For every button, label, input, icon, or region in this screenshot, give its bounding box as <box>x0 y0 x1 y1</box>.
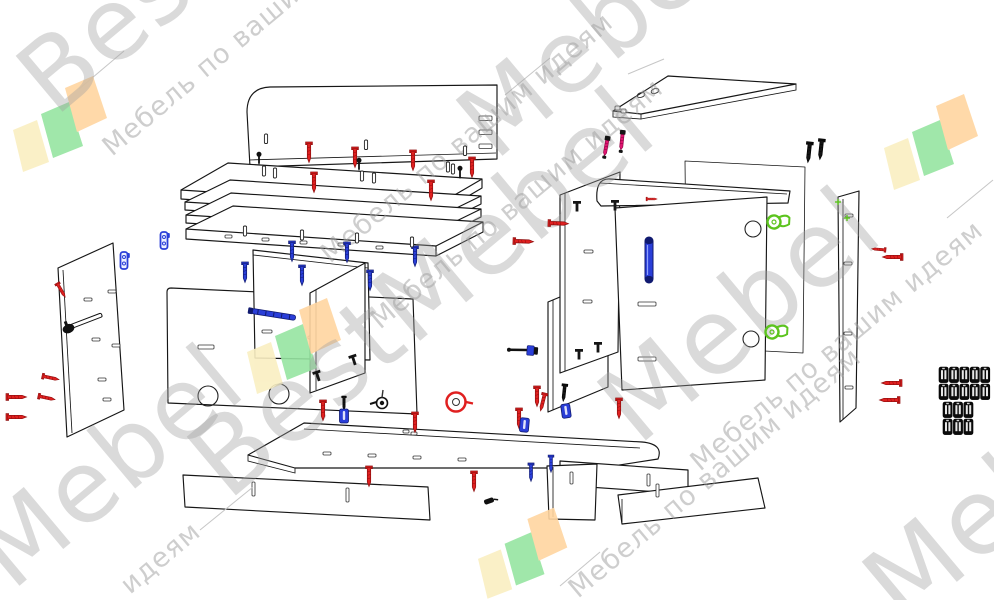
pin-fastener-icon <box>364 140 367 150</box>
pinUp-fastener-icon <box>300 230 303 240</box>
fitting-slot <box>411 432 417 435</box>
ballPin-fastener-icon <box>357 158 362 171</box>
screw-fastener-icon <box>538 392 548 411</box>
screw-fastener-icon <box>880 397 901 404</box>
fitting-slot <box>108 290 116 293</box>
screw-fastener-icon <box>6 394 27 401</box>
pinUp-fastener-icon <box>355 233 358 243</box>
screw-fastener-icon <box>41 373 59 382</box>
pinUp-fastener-icon <box>372 173 375 183</box>
handleV-fastener-icon <box>645 237 653 283</box>
fitting-slot <box>403 430 409 433</box>
pin-fastener-icon <box>463 146 466 156</box>
hardware-pack <box>943 402 973 435</box>
pinUp-fastener-icon <box>243 226 246 236</box>
fitting-slot <box>413 456 421 459</box>
watermark-line <box>947 180 993 218</box>
fitting-slot <box>300 241 307 244</box>
bestmebel-logo-icon <box>884 94 978 190</box>
screw-fastener-icon <box>6 414 27 421</box>
screw-fastener-icon <box>816 139 825 160</box>
fitting-slot <box>647 474 650 486</box>
fitting-slot <box>638 302 656 306</box>
Lbracket-fastener-icon <box>121 252 130 269</box>
assembly-diagram-page: BestMebelMebelBestMebelMebelMebelMebelМе… <box>0 0 994 600</box>
pinUp-fastener-icon <box>360 171 363 181</box>
clipT-fastener-icon <box>561 403 572 418</box>
fitting-slot <box>92 338 100 341</box>
fitting-slot <box>262 238 269 241</box>
redRing-fastener-icon <box>447 393 474 412</box>
hardware-pack <box>939 367 990 400</box>
screw-fastener-icon <box>242 262 249 283</box>
fitting-slot <box>584 250 593 253</box>
fitting-slot <box>458 458 466 461</box>
screw-fastener-icon <box>37 393 55 402</box>
watermark-layer: BestMebelMebelBestMebelMebelMebelMebelМе… <box>0 0 994 600</box>
hbolt-fastener-icon <box>507 344 539 356</box>
fitting-slot <box>262 330 272 333</box>
fitting-slot <box>368 454 376 457</box>
fitting-slot <box>112 344 120 347</box>
screw-fastener-icon <box>471 471 478 492</box>
blackBit-fastener-icon <box>483 496 498 505</box>
fitting-slot <box>845 386 853 389</box>
pin-fastener-icon <box>264 134 267 144</box>
fitting-slot <box>346 488 349 502</box>
fitting-slot <box>583 300 592 303</box>
fitting-slot <box>570 472 573 484</box>
fitting-slot <box>225 235 232 238</box>
screw-fastener-icon <box>882 380 903 387</box>
pinUp-fastener-icon <box>273 168 276 178</box>
pinUp-fastener-icon <box>262 166 265 176</box>
screw-fastener-icon <box>804 142 813 163</box>
bestmebel-logo-icon <box>478 508 567 599</box>
pinUp-fastener-icon <box>446 162 449 172</box>
screw-fastener-icon <box>534 386 541 407</box>
exploded-view-diagram: BestMebelMebelBestMebelMebelMebelMebelМе… <box>0 0 994 600</box>
fitting-slot <box>84 298 92 301</box>
pinUp-fastener-icon <box>410 237 413 247</box>
clipT-fastener-icon <box>340 409 349 423</box>
fitting-slot <box>656 484 659 497</box>
clipT-fastener-icon <box>519 418 529 433</box>
pinUp-fastener-icon <box>451 164 454 174</box>
watermark-tagline-text: идеям <box>115 516 207 600</box>
Lbracket-fastener-icon <box>161 232 170 249</box>
fitting-slot <box>98 378 106 381</box>
